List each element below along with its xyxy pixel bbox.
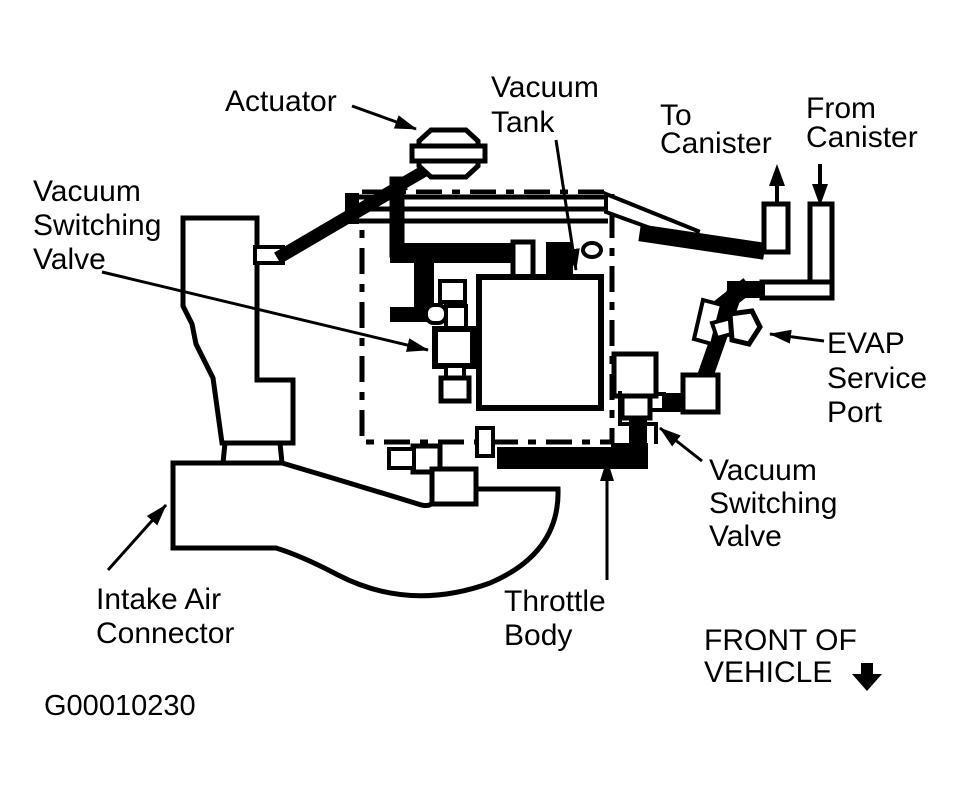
vsv-left-body xyxy=(435,329,473,366)
tank-oval-connector xyxy=(583,243,601,257)
vsv-right-body xyxy=(614,354,656,396)
vsv-left-label-line2: Switching xyxy=(33,209,161,242)
hose-main-arm xyxy=(390,243,514,263)
vacuum-tank-label-line2: Tank xyxy=(491,106,555,139)
throttle-pipe xyxy=(477,428,493,456)
intake-label-line2: Connector xyxy=(96,617,234,650)
intake-label-line1: Intake Air xyxy=(96,583,221,616)
vsv-right-label-line1: Vacuum xyxy=(709,454,817,487)
evap-black-stub xyxy=(664,393,684,412)
evap-label-line3: Port xyxy=(827,396,883,429)
vsv-left-upper-block xyxy=(446,306,466,329)
vsv-right-label-line2: Switching xyxy=(709,487,837,520)
hose-oval-cap xyxy=(426,305,446,323)
throttle-hose-band xyxy=(497,447,624,469)
vsv-left-top-connector xyxy=(440,281,465,302)
actuator-group xyxy=(412,130,485,177)
vacuum-hose-routing-diagram: Actuator Vacuum Tank To Canister From Ca… xyxy=(0,0,975,787)
vsv-left-bottom-block xyxy=(441,378,469,401)
vacuum-diagram-page: Actuator Vacuum Tank To Canister From Ca… xyxy=(0,0,975,787)
vsv-right-base xyxy=(622,396,650,418)
vacuum-tank-shape xyxy=(479,277,601,408)
throttle-lower-block xyxy=(432,469,476,504)
vacuum-tank-label-line1: Vacuum xyxy=(491,71,599,104)
front-of-vehicle-label-line1: FRONT OF xyxy=(704,624,857,657)
throttle-label-line1: Throttle xyxy=(504,585,606,618)
figure-code: G00010230 xyxy=(44,690,196,722)
hose-lower-arm xyxy=(390,307,428,322)
to-canister-pipe xyxy=(764,204,788,252)
evap-connector-block xyxy=(683,375,718,412)
intake-neck-shape xyxy=(223,443,282,463)
actuator-band xyxy=(412,146,485,161)
to-canister-label-line2: Canister xyxy=(660,127,772,160)
from-canister-pipe xyxy=(810,204,832,286)
actuator-label: Actuator xyxy=(225,85,337,118)
tank-black-stub xyxy=(546,242,573,275)
vsv-left-label-line1: Vacuum xyxy=(33,175,141,208)
tank-inlet-pipe xyxy=(513,242,533,278)
throttle-label-line2: Body xyxy=(504,619,572,652)
vsv-right-label-line3: Valve xyxy=(709,520,782,553)
from-canister-elbow-band xyxy=(762,282,832,298)
evap-label-line1: EVAP xyxy=(827,327,905,360)
vsv-left-label-line3: Valve xyxy=(33,243,106,276)
evap-label-line2: Service xyxy=(827,362,927,395)
from-canister-label-line2: Canister xyxy=(806,121,918,154)
throttle-connector-b xyxy=(389,449,414,468)
front-of-vehicle-label-line2: VEHICLE xyxy=(704,656,832,689)
